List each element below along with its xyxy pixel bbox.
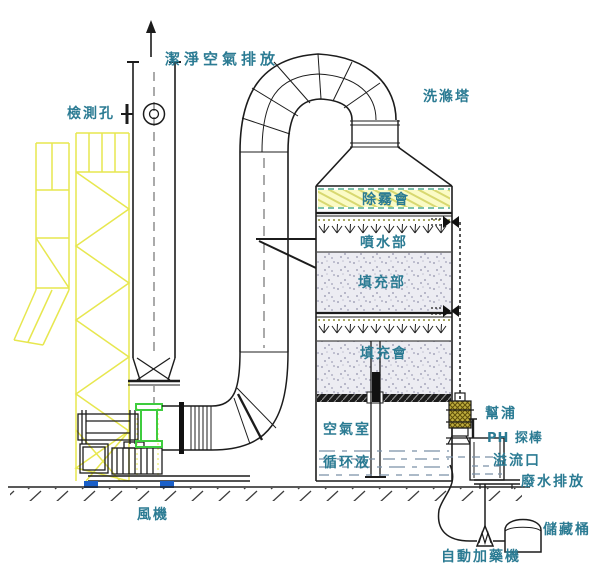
label-fan: 風機 [137, 506, 169, 523]
label-pump: 幫浦 [485, 405, 517, 422]
label-auto-dosing-machine: 自動加藥機 [441, 548, 521, 565]
label-ph-probe: PH 探棒 [487, 430, 543, 446]
ground-line [8, 487, 530, 501]
label-wastewater-discharge: 廢水排放 [521, 473, 585, 490]
scrubber-tower-process-diagram: 潔淨空氣排放 檢測孔 洗滌塔 除霧會 噴水部 填充部 填充會 空氣室 循环液 幫… [0, 0, 602, 565]
label-packing-section-1: 填充部 [358, 274, 406, 291]
diagram-canvas: 潔淨空氣排放 檢測孔 洗滌塔 除霧會 噴水部 填充部 填充會 空氣室 循环液 幫… [0, 0, 602, 565]
label-scrubber-tower: 洗滌塔 [423, 88, 471, 105]
flex-connector-green [136, 404, 162, 447]
label-demister-layer: 除霧會 [362, 191, 410, 208]
label-overflow-port: 溢流口 [493, 452, 541, 469]
exhaust-stack [121, 62, 181, 404]
label-inspection-hole: 檢測孔 [67, 105, 115, 122]
tower-support-bracket [256, 239, 316, 268]
storage-barrel [505, 520, 541, 553]
label-spray-section: 噴水部 [360, 234, 408, 251]
label-clean-air-exhaust: 潔淨空氣排放 [165, 50, 279, 68]
label-storage-tank: 儲藏桶 [542, 521, 591, 538]
label-air-chamber: 空氣室 [323, 421, 371, 438]
label-packing-section-2: 填充會 [360, 345, 408, 362]
up-arrow-icon [146, 20, 156, 57]
label-circulating-liquid: 循环液 [323, 454, 371, 471]
